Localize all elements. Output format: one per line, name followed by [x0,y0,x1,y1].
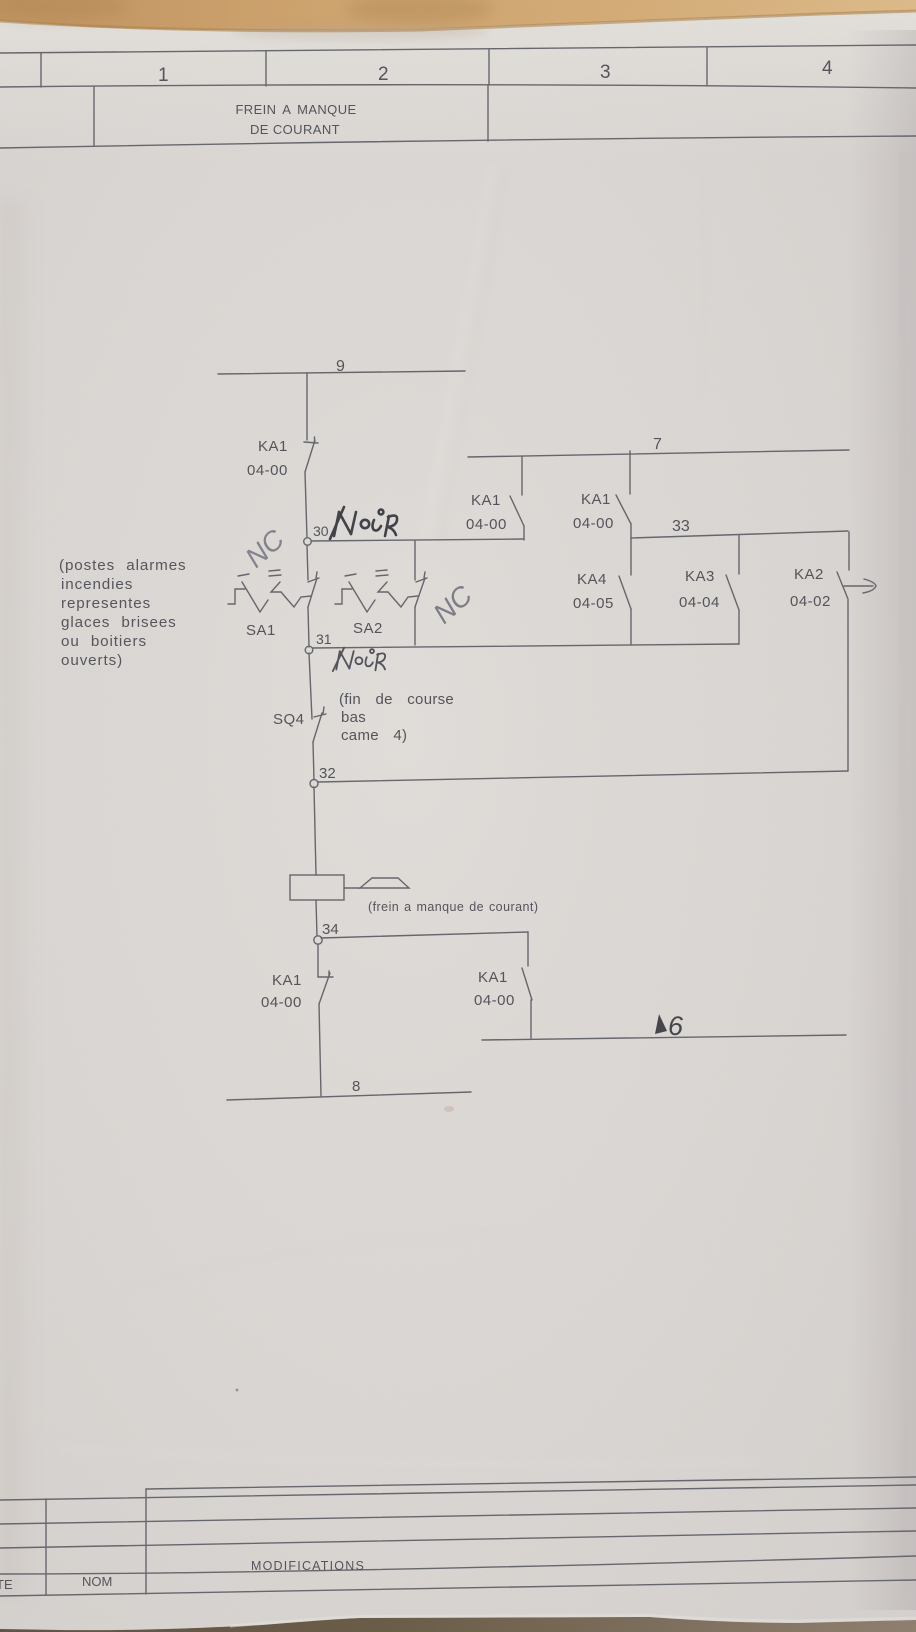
svg-text:SQ4: SQ4 [273,711,305,728]
svg-text:KA1: KA1 [581,491,611,508]
svg-text:2: 2 [378,64,389,85]
svg-text:KA4: KA4 [577,571,607,588]
svg-text:KA2: KA2 [794,566,824,583]
svg-text:33: 33 [672,518,690,535]
svg-text:04-04: 04-04 [679,594,720,611]
svg-text:ou boitiers: ou boitiers [61,633,147,650]
svg-text:FREIN A MANQUE: FREIN A MANQUE [235,102,356,117]
svg-text:4: 4 [822,58,833,79]
svg-text:1: 1 [158,65,169,86]
svg-text:KA1: KA1 [478,969,508,986]
svg-text:04-00: 04-00 [573,515,614,532]
svg-text:04-02: 04-02 [790,593,831,610]
svg-text:04-00: 04-00 [247,462,288,479]
svg-text:(postes alarmes: (postes alarmes [59,557,187,574]
svg-text:TE: TE [0,1577,13,1592]
svg-text:KA3: KA3 [685,568,715,585]
svg-text:30: 30 [313,523,329,539]
svg-text:SA2: SA2 [353,620,383,637]
svg-text:representes: representes [61,595,151,612]
svg-text:6: 6 [668,1011,684,1041]
svg-text:incendies: incendies [61,576,133,593]
svg-text:3: 3 [600,62,611,83]
svg-text:7: 7 [653,436,662,453]
svg-text:came 4): came 4) [341,727,407,744]
svg-text:bas: bas [341,709,366,726]
svg-text:NOM: NOM [82,1574,112,1589]
svg-text:04-00: 04-00 [466,516,507,533]
svg-text:04-05: 04-05 [573,595,614,612]
svg-text:(fin de course: (fin de course [339,691,454,708]
svg-text:34: 34 [322,921,339,938]
svg-text:8: 8 [352,1078,360,1095]
svg-text:KA1: KA1 [272,972,302,989]
svg-text:DE COURANT: DE COURANT [250,122,340,137]
svg-text:ouverts): ouverts) [61,652,123,669]
svg-text:(frein a manque de courant): (frein a manque de courant) [368,900,538,914]
svg-text:MODIFICATIONS: MODIFICATIONS [251,1559,365,1573]
svg-text:04-00: 04-00 [474,992,515,1009]
svg-text:KA1: KA1 [471,492,501,509]
svg-text:9: 9 [336,358,345,375]
svg-text:KA1: KA1 [258,438,288,455]
svg-text:31: 31 [316,631,332,647]
svg-text:04-00: 04-00 [261,994,302,1011]
svg-text:glaces brisees: glaces brisees [61,614,177,631]
svg-text:SA1: SA1 [246,622,276,639]
svg-text:32: 32 [319,765,336,782]
